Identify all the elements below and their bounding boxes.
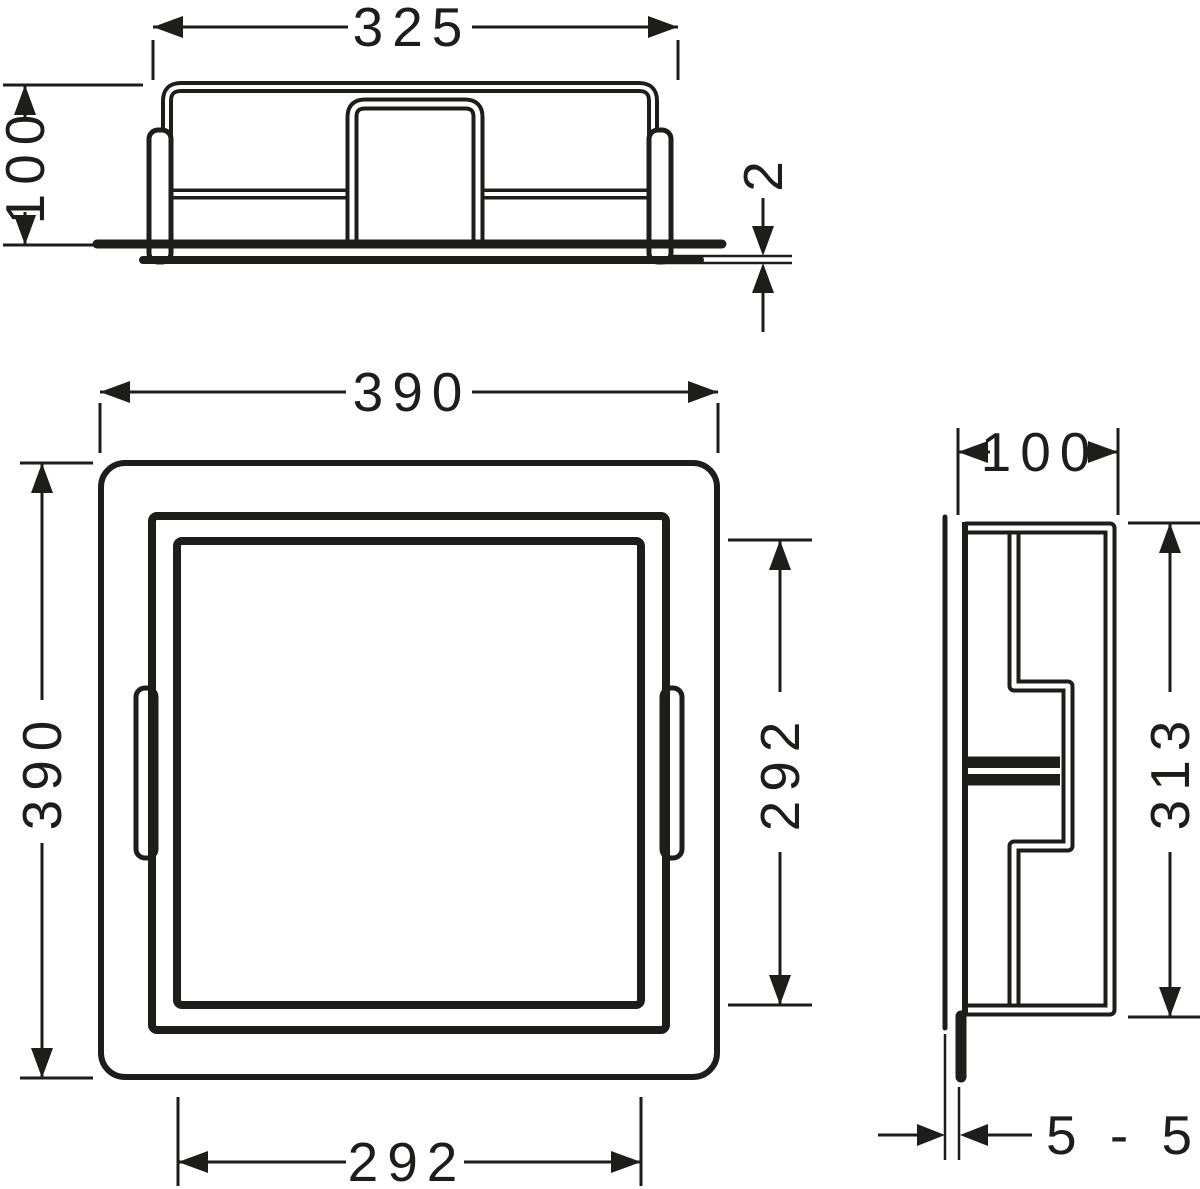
dim-label-front-width: 390 <box>353 361 472 423</box>
arrowhead-left <box>153 16 183 38</box>
dim-side-height: 313 <box>1128 523 1200 1017</box>
dim-label-side-height: 313 <box>1139 712 1200 831</box>
arrowhead-right <box>648 16 678 38</box>
front-view-spring-clips <box>136 688 682 858</box>
arrowhead-down <box>769 975 791 1005</box>
arrowhead-left <box>178 1151 208 1173</box>
dim-opening-width: 292 <box>178 1097 641 1189</box>
arrowhead-left <box>100 381 130 403</box>
arrowhead-right <box>688 381 718 403</box>
front-view-outer-flange <box>101 463 717 1077</box>
dim-top-height: 100 <box>0 85 143 245</box>
dim-front-width: 390 <box>100 361 718 453</box>
arrowhead-up <box>31 463 53 493</box>
dim-label-front-height: 390 <box>11 712 73 831</box>
dim-flange-thickness: 2 <box>732 152 794 332</box>
dim-label-opening-height: 292 <box>749 713 811 832</box>
arrowhead-up <box>769 540 791 570</box>
top-view: 325 100 2 <box>0 0 794 332</box>
top-view-center-tab <box>352 104 478 246</box>
dim-label-flange-thickness: 2 <box>732 152 794 192</box>
front-view-frame <box>152 516 666 1030</box>
side-view: 100 313 5 - 55 <box>878 421 1200 1166</box>
arrowhead-up <box>752 263 774 293</box>
top-view-flange <box>97 244 722 260</box>
dim-label-top-width: 325 <box>353 0 472 58</box>
dim-opening-height: 292 <box>728 540 812 1005</box>
dim-top-width: 325 <box>153 0 678 80</box>
arrowhead-up <box>1159 523 1181 553</box>
arrowhead-right <box>917 1124 945 1146</box>
arrowhead-down <box>1159 987 1181 1017</box>
arrowhead-down <box>31 1048 53 1078</box>
dim-label-install-depth-range: 5 - 55 <box>1046 1104 1200 1166</box>
front-view-niche-opening <box>177 541 641 1005</box>
dimension-drawing-canvas: 325 100 2 <box>0 0 1200 1189</box>
arrowhead-left <box>960 1124 988 1146</box>
dim-front-height: 390 <box>11 463 93 1078</box>
dim-install-depth-range: 5 - 55 <box>878 1104 1200 1166</box>
front-view: 390 390 292 <box>11 361 812 1189</box>
dim-label-opening-width: 292 <box>348 1131 467 1189</box>
arrowhead-down <box>752 226 774 256</box>
dim-label-top-height: 100 <box>0 106 56 225</box>
arrowhead-right <box>611 1151 641 1173</box>
dim-label-side-depth: 100 <box>981 421 1100 483</box>
dim-side-depth: 100 <box>958 421 1118 515</box>
technical-drawing-page: 325 100 2 <box>0 0 1200 1189</box>
